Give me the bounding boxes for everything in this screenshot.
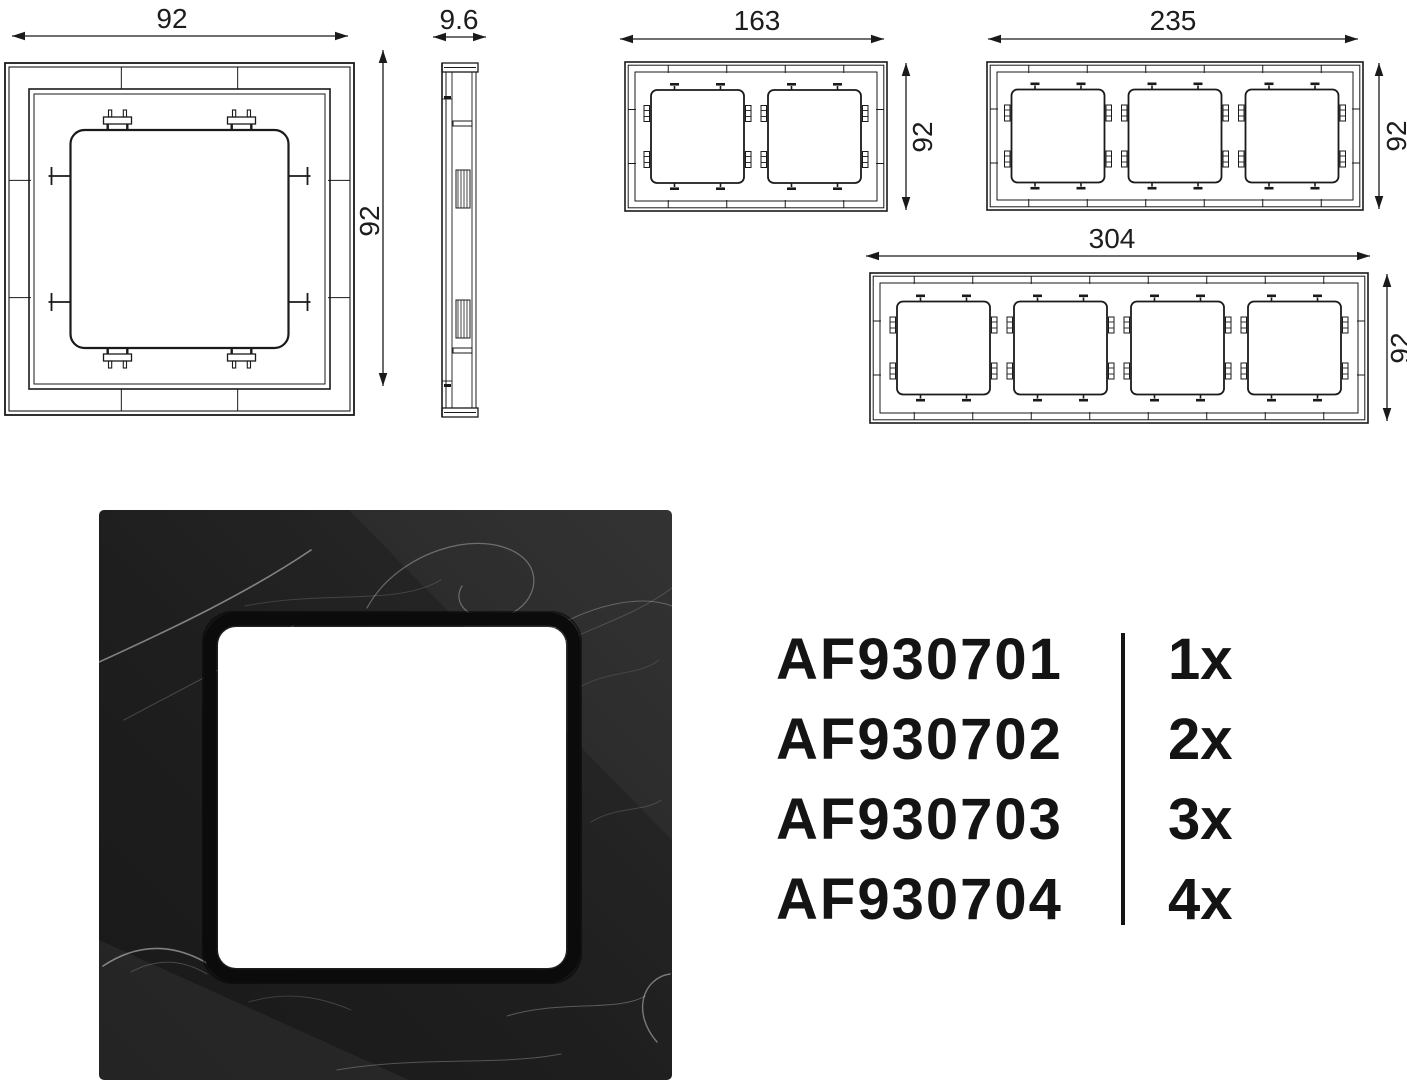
dim-label-4gang-width: 304 <box>1089 223 1136 254</box>
drawing-1gang-front-view <box>5 63 354 415</box>
gang-count: 4x <box>1168 866 1233 933</box>
table-divider-line <box>1121 633 1125 925</box>
window-opening <box>218 627 566 968</box>
order-code-row: AF930703 3x <box>776 779 1336 859</box>
order-code-row: AF930702 2x <box>776 699 1336 779</box>
dim-label-1gang-width: 92 <box>156 3 187 34</box>
drawing-side-profile-view <box>442 63 478 417</box>
drawing-4gang-front-view <box>870 273 1368 423</box>
dim-label-4gang-height: 92 <box>1385 332 1407 363</box>
datasheet-page: 92 9.6 163 235 304 92 92 92 92 <box>0 0 1407 1086</box>
dim-label-2gang-width: 163 <box>734 5 781 36</box>
gang-count: 2x <box>1168 706 1233 773</box>
gang-count: 3x <box>1168 786 1233 853</box>
marble-frame-image <box>99 510 672 1080</box>
drawing-3gang-front-view <box>987 62 1363 210</box>
order-code-row: AF930701 1x <box>776 619 1336 699</box>
technical-drawings: 92 9.6 163 235 304 92 92 92 92 <box>0 0 1407 450</box>
dim-label-3gang-width: 235 <box>1150 5 1197 36</box>
drawing-2gang-front-view <box>625 62 887 211</box>
dim-label-depth: 9.6 <box>440 4 479 35</box>
product-code: AF930704 <box>776 866 1121 933</box>
product-code: AF930703 <box>776 786 1121 853</box>
dim-label-1gang-height: 92 <box>354 205 385 236</box>
product-photo-black-marble-frame <box>99 510 672 1080</box>
dim-label-2gang-height: 92 <box>907 121 938 152</box>
dim-label-3gang-height: 92 <box>1381 120 1407 151</box>
gang-count: 1x <box>1168 626 1233 693</box>
order-codes-table: AF930701 1x AF930702 2x AF930703 3x AF93… <box>776 619 1336 939</box>
order-code-row: AF930704 4x <box>776 859 1336 939</box>
product-code: AF930702 <box>776 706 1121 773</box>
product-code: AF930701 <box>776 626 1121 693</box>
